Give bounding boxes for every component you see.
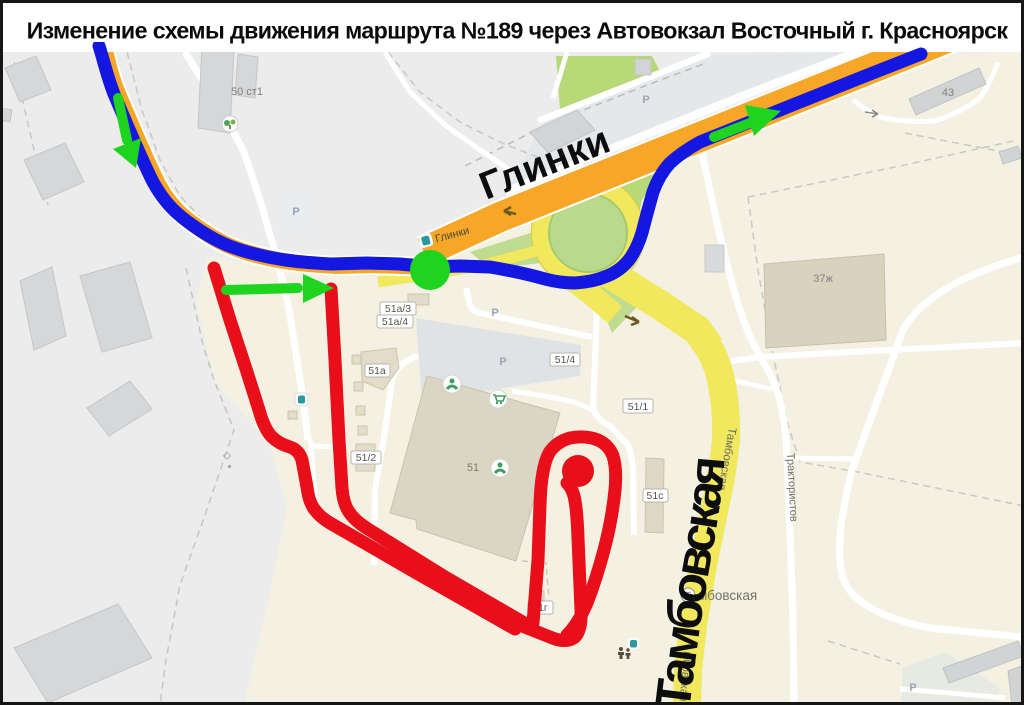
svg-text:51а/3: 51а/3 (385, 303, 411, 315)
svg-text:50 ст1: 50 ст1 (231, 86, 263, 98)
svg-text:51а/4: 51а/4 (382, 316, 408, 328)
svg-text:P: P (491, 307, 498, 319)
svg-text:43: 43 (942, 87, 954, 99)
svg-text:51: 51 (467, 462, 479, 474)
svg-text:51а: 51а (368, 365, 386, 377)
svg-text:P: P (499, 356, 506, 368)
svg-text:P: P (909, 682, 916, 694)
svg-text:P: P (292, 206, 299, 218)
svg-text:P: P (642, 94, 649, 106)
svg-text:Изменение схемы движения маршр: Изменение схемы движения маршрута №189 ч… (27, 18, 1009, 44)
svg-text:51с: 51с (647, 490, 664, 502)
svg-text:51/4: 51/4 (555, 354, 576, 366)
svg-text:51/2: 51/2 (356, 452, 377, 464)
svg-text:51/1: 51/1 (628, 401, 649, 413)
svg-text:37ж: 37ж (813, 273, 833, 285)
